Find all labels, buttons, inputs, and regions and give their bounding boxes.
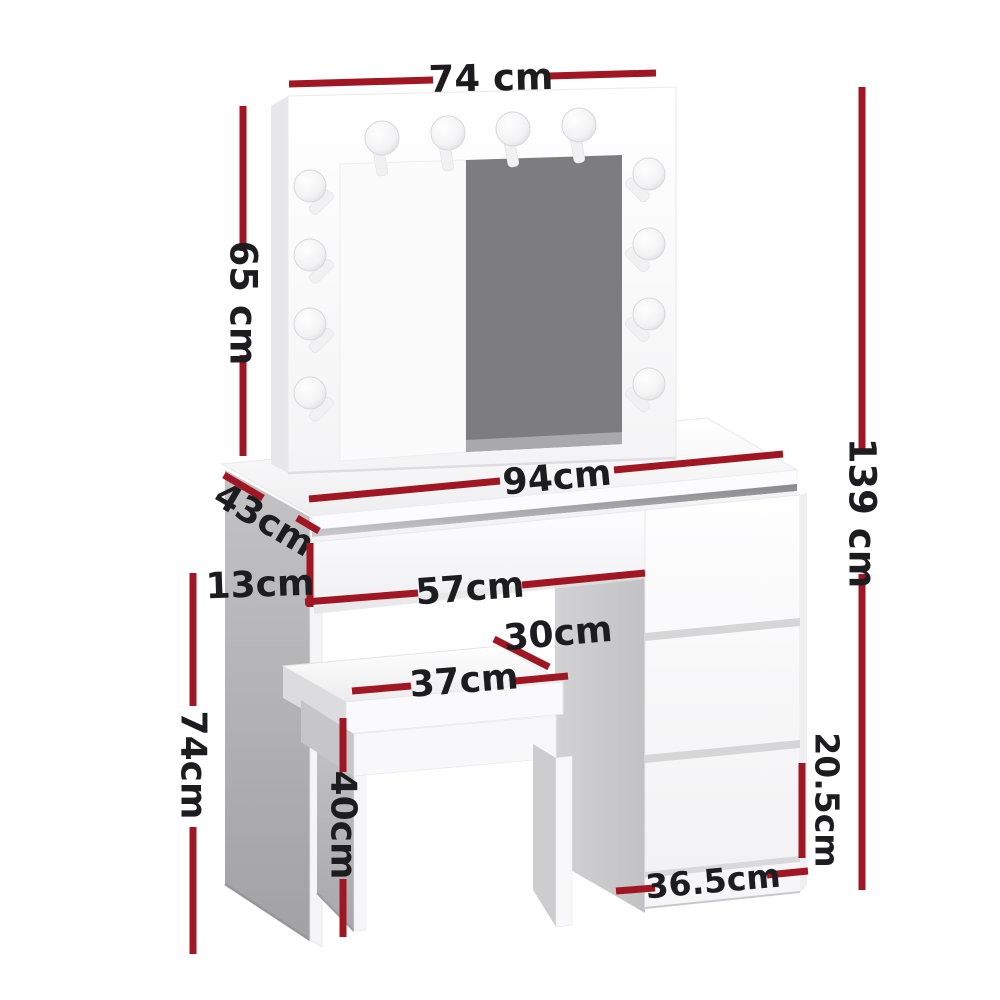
light-bulb bbox=[294, 308, 326, 340]
dim-mirror-height: 65 cm bbox=[222, 106, 265, 456]
light-bulb bbox=[633, 368, 665, 400]
light-bulb bbox=[633, 228, 665, 260]
dim-mirror-height-label: 65 cm bbox=[222, 241, 265, 366]
mirror-unit bbox=[271, 87, 676, 473]
dim-side-drawer-height-label: 20.5cm bbox=[808, 732, 847, 867]
light-bulb bbox=[431, 116, 465, 150]
mirror-glass-white bbox=[340, 160, 466, 461]
light-bulb bbox=[294, 377, 326, 409]
dim-side-drawer-height: 20.5cm bbox=[802, 732, 847, 867]
dim-stool-width-label: 37cm bbox=[408, 656, 520, 706]
light-bulb bbox=[496, 112, 530, 146]
dim-drawer-height-label: 13cm bbox=[205, 563, 315, 608]
dim-desk-height-label: 74cm bbox=[173, 711, 214, 820]
dim-mirror-width-line-right bbox=[549, 73, 656, 76]
light-bulb bbox=[294, 170, 326, 202]
drawer-pedestal bbox=[645, 492, 807, 908]
dim-stool-height-label: 40cm bbox=[323, 771, 364, 880]
light-bulb bbox=[633, 158, 665, 190]
dimension-diagram-stage: 74 cm 65 cm 139 cm 94cm 43cm 13cm bbox=[0, 0, 1000, 1000]
dressing-table-dimension-diagram: 74 cm 65 cm 139 cm 94cm 43cm 13cm bbox=[0, 0, 1000, 1000]
dim-stool-width-line-right bbox=[515, 676, 568, 681]
stool-leg-right-inner bbox=[533, 744, 556, 927]
mirror-glass-gray bbox=[466, 155, 622, 452]
dim-total-height-label: 139 cm bbox=[841, 438, 884, 589]
dim-mirror-width-line-left bbox=[289, 80, 433, 84]
light-bulb bbox=[633, 298, 665, 330]
pedestal-front bbox=[645, 495, 800, 908]
light-bulb bbox=[562, 108, 596, 142]
dim-drawer-width-label: 57cm bbox=[414, 564, 526, 613]
light-bulb bbox=[365, 121, 399, 155]
mirror-frame-side bbox=[271, 96, 288, 473]
dim-mirror-width-label: 74 cm bbox=[428, 55, 554, 101]
dim-stool-width-line-left bbox=[352, 686, 411, 691]
dim-desk-height: 74cm bbox=[173, 573, 214, 954]
stool-leg-right-front bbox=[556, 756, 572, 927]
light-bulb bbox=[294, 239, 326, 271]
